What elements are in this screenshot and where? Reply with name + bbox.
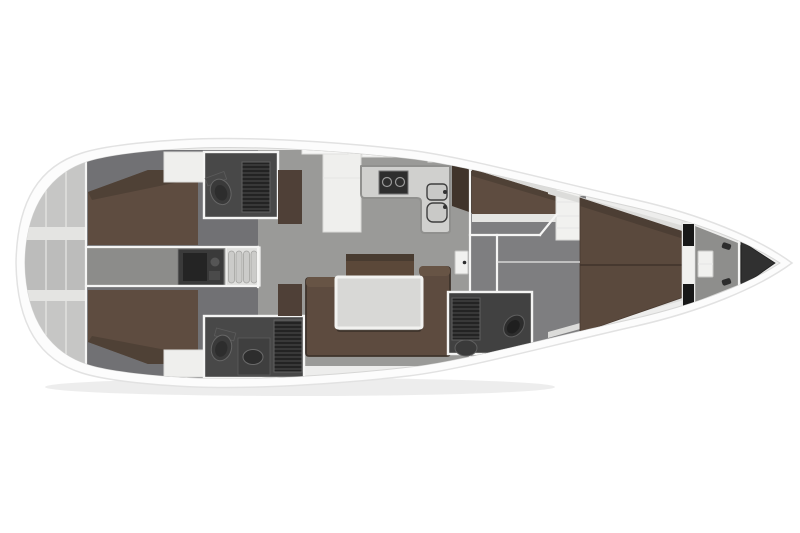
transom-shelf-upper (24, 227, 86, 240)
engine-mount (209, 271, 220, 280)
aft-starboard-locker (164, 350, 208, 377)
galley-faucet (443, 205, 447, 209)
aft-head-starboard-sink (243, 350, 263, 365)
transom-shelf-lower (24, 290, 86, 301)
engine-block (183, 253, 207, 281)
aft-port-counter (278, 170, 302, 224)
stove-icon (379, 171, 408, 194)
sofa-armrest-left (306, 277, 337, 287)
forward-head-shower-grate (452, 298, 480, 340)
bow-locker-hatch-top (683, 224, 694, 246)
galley-faucet (443, 190, 447, 194)
floor-plan-canvas (0, 0, 800, 533)
forward-head-sink (455, 340, 477, 356)
aft-head-port-shower-grate (242, 162, 270, 212)
door-handle (463, 261, 467, 265)
aft-port-locker (164, 152, 208, 182)
saloon-sideboard-top (346, 254, 414, 261)
aft-head-starboard-shower-grate (274, 320, 302, 372)
sofa-armrest-right (419, 266, 450, 276)
galley-fridge-cabinet (323, 152, 361, 232)
transom-center-shade (24, 240, 86, 290)
yacht-floor-plan (0, 0, 800, 533)
aft-starboard-counter (278, 284, 302, 316)
engine-pulley (211, 258, 220, 267)
saloon-table (336, 277, 422, 328)
owner-settee-base (472, 214, 556, 222)
